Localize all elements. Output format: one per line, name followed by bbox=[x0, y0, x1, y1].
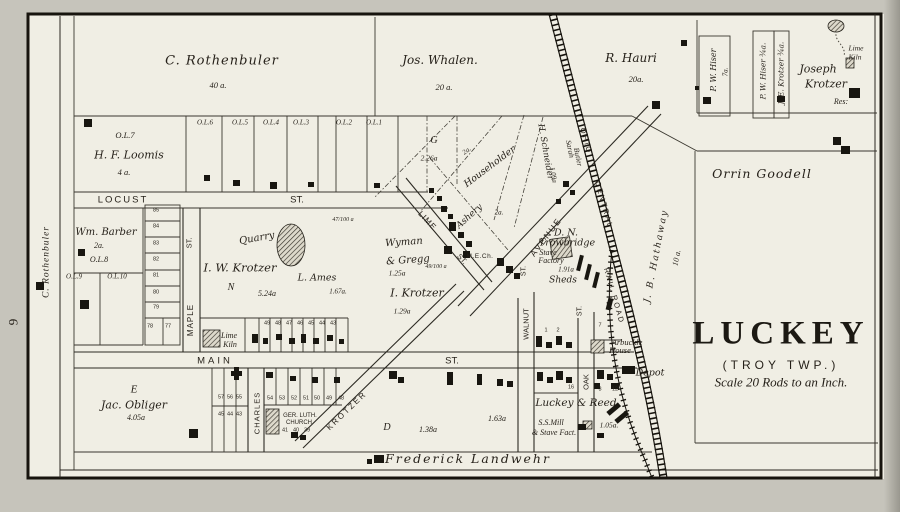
arbuckle-house-label-2: House bbox=[609, 346, 631, 355]
atlas-page: 9 C. Rothenbuler LUCKEY (TROY TWP.) Scal… bbox=[0, 0, 900, 512]
acreage-label: 7a. bbox=[723, 68, 730, 77]
outlot-label: O.L.9 bbox=[66, 274, 82, 281]
lot-number: 45 bbox=[308, 321, 314, 327]
map-scale: Scale 20 Rods to an Inch. bbox=[715, 376, 848, 389]
parcel-letter-n: N bbox=[228, 283, 235, 293]
parcel-letter-e: E bbox=[131, 385, 138, 396]
acreage-label: 1.05a. bbox=[600, 421, 619, 429]
parcel-label-whalen: Jos. Whalen. bbox=[402, 54, 478, 66]
outlot-label: O.L.3 bbox=[293, 120, 309, 127]
acreage-label: 4 a. bbox=[118, 168, 131, 177]
acreage-label: 1.25a bbox=[389, 269, 406, 277]
parcel-label-hiser-34: P. W. Hiser ¾a. bbox=[759, 43, 767, 100]
street-label-oak: OAK bbox=[582, 374, 590, 390]
street-label-locust: LOCUST bbox=[98, 195, 149, 205]
lot-number: 44 bbox=[319, 321, 325, 327]
parcel-label-krotzer-je: J. E. Krotzer ¾a. bbox=[777, 42, 785, 105]
lot-number: 49 bbox=[326, 396, 332, 402]
map-title: LUCKEY bbox=[692, 318, 869, 351]
street-label-main-st: ST. bbox=[445, 356, 459, 366]
acreage-label: 2a. bbox=[495, 210, 504, 217]
lime-kiln-label: Lime bbox=[221, 332, 237, 340]
parcel-label-joseph-krotzer-2: Krotzer bbox=[805, 79, 847, 90]
parcel-label-trowbridge-2: Trowbridge bbox=[539, 238, 595, 248]
lot-number: 1 bbox=[544, 328, 547, 334]
stave-factory-label-2: Factory bbox=[538, 257, 563, 265]
parcel-letter-d: D bbox=[383, 423, 390, 433]
acreage-label: 1.09a bbox=[548, 167, 558, 184]
outlot-label: O.L.6 bbox=[197, 120, 213, 127]
lot-number: 53 bbox=[279, 396, 285, 402]
lot-number: 52 bbox=[291, 396, 297, 402]
parcel-label-hiser-7a: P. W. Hiser bbox=[710, 49, 718, 92]
parcel-label-landwehr: Frederick Landwehr bbox=[385, 453, 551, 466]
fraction-acreage-label: 47/100 a bbox=[332, 217, 353, 223]
acreage-label: 20 a. bbox=[436, 83, 453, 92]
lot-number: 43 bbox=[330, 321, 336, 327]
lot-number: 80 bbox=[153, 290, 159, 296]
acreage-label: 1.91a bbox=[558, 267, 574, 274]
acreage-label: 1.63a bbox=[488, 415, 506, 423]
lot-number: 79 bbox=[153, 305, 159, 311]
parcel-label-loomis: H. F. Loomis bbox=[94, 150, 164, 161]
lot-number: 85 bbox=[153, 208, 159, 214]
mill-label: S.S.Mill bbox=[538, 419, 563, 427]
acreage-label: 1.29a bbox=[394, 307, 411, 315]
mill-label-2: & Stave Fact. bbox=[532, 429, 576, 437]
street-label-maple: MAPLE bbox=[187, 304, 195, 336]
fraction-acreage-label: 49/100 a bbox=[425, 264, 446, 270]
street-label-charles: CHARLES bbox=[253, 392, 261, 434]
sheds-label: Sheds bbox=[549, 277, 577, 286]
lot-number: 57 bbox=[218, 395, 224, 401]
lot-number: 46 bbox=[297, 321, 303, 327]
kiln-trail bbox=[836, 31, 844, 56]
parcel-label-hauri: R. Hauri bbox=[605, 52, 657, 64]
lime-kiln-label-2: Kiln bbox=[223, 341, 237, 349]
parcel-label-ames: L. Ames bbox=[298, 273, 337, 283]
lot-number: 7 bbox=[598, 323, 601, 329]
lot-number: 51 bbox=[303, 396, 309, 402]
street-label-locust-st: ST. bbox=[290, 195, 304, 205]
outlot-label: O.L.10 bbox=[107, 274, 126, 281]
parcel-label-rothenbuler: C. Rothenbuler bbox=[165, 55, 279, 68]
ger-luth-church-building bbox=[266, 409, 279, 434]
page-number: 9 bbox=[7, 319, 20, 326]
parcel-letter-g: G bbox=[430, 136, 437, 146]
ne-kiln-blob bbox=[828, 20, 844, 32]
street-label-oak-st: ST. bbox=[577, 306, 584, 316]
lime-kiln-ne-label-2: Kiln bbox=[849, 53, 862, 61]
outlot-label: O.L.7 bbox=[115, 131, 134, 140]
outlot-label: O.L.5 bbox=[232, 120, 248, 127]
street-label-walnut-st: ST. bbox=[521, 266, 528, 276]
lot-number: 41 bbox=[282, 428, 288, 434]
parcel-label-joseph-krotzer: Joseph bbox=[799, 64, 836, 75]
lot-number: 84 bbox=[153, 224, 159, 230]
acreage-label: 40 a. bbox=[210, 81, 227, 90]
outlot-label: O.L.1 bbox=[366, 120, 382, 127]
parcel-label-krotzer-i: I. Krotzer bbox=[390, 288, 443, 299]
street-label-maple-st: ST. bbox=[185, 238, 193, 249]
page-edge-shadow bbox=[884, 0, 900, 512]
lot-number: 16 bbox=[568, 385, 574, 391]
acreage-label: 1.38a bbox=[419, 426, 437, 434]
me-church-label: M.E.Ch. bbox=[467, 254, 494, 261]
depot-label: Depot bbox=[636, 368, 665, 378]
ger-luth-church-label-2: CHURCH bbox=[286, 420, 312, 426]
dashed-parcel-lines bbox=[374, 115, 543, 250]
lot-number: 56 bbox=[227, 395, 233, 401]
street-label-main: MAIN bbox=[197, 356, 233, 366]
lot-number: 81 bbox=[153, 273, 159, 279]
lot-number: 49 bbox=[264, 321, 270, 327]
arbuckle-house-building bbox=[591, 340, 604, 353]
acreage-label: 4.05a bbox=[127, 414, 145, 422]
lot-number: 83 bbox=[153, 241, 159, 247]
lot-number: 3 bbox=[598, 387, 601, 393]
lot-number: 48 bbox=[338, 396, 344, 402]
ger-luth-church-label: GER. LUTH. bbox=[283, 413, 317, 419]
lot-number: 47 bbox=[286, 321, 292, 327]
parcel-label-krotzer-iw: I. W. Krotzer bbox=[204, 262, 277, 274]
lime-kiln-building bbox=[203, 330, 220, 347]
lot-number: 44 bbox=[227, 412, 233, 418]
acreage-label: 5.24a bbox=[258, 290, 276, 298]
acreage-label: 2a. bbox=[94, 242, 104, 250]
lot-number: 45 bbox=[218, 412, 224, 418]
lot-number: 77 bbox=[165, 324, 171, 330]
lot-number: 78 bbox=[147, 324, 153, 330]
lot-number: 50 bbox=[314, 396, 320, 402]
acreage-label: 2.26a bbox=[421, 154, 438, 162]
outlot-label: O.L.8 bbox=[90, 256, 108, 264]
quarry-blob bbox=[277, 224, 305, 266]
parcel-label-obliger: Jac. Obliger bbox=[101, 400, 167, 411]
lot-number: 40 bbox=[293, 428, 299, 434]
street-label-walnut: WALNUT bbox=[522, 308, 530, 339]
margin-owner-label: C. Rothenbuler bbox=[42, 226, 52, 298]
lime-kiln-ne-label: Lime bbox=[849, 44, 864, 52]
acreage-label: 20a. bbox=[629, 75, 644, 84]
lot-number: 2 bbox=[556, 328, 559, 334]
lot-number: 39 bbox=[304, 428, 310, 434]
parcel-label-goodell: Orrin Goodell bbox=[712, 168, 812, 181]
map-township: (TROY TWP.) bbox=[723, 359, 840, 371]
lot-number: 55 bbox=[236, 395, 242, 401]
lot-number: 82 bbox=[153, 257, 159, 263]
lot-number: 48 bbox=[275, 321, 281, 327]
lot-number: 43 bbox=[236, 412, 242, 418]
lot-number: 54 bbox=[267, 396, 273, 402]
lot-number: 12 bbox=[612, 387, 618, 393]
parcel-label-barber: Wm. Barber bbox=[75, 228, 136, 238]
parcel-label-luckey-reed: Luckey & Reed bbox=[535, 398, 616, 409]
residence-label: Res: bbox=[834, 98, 848, 106]
outlot-label: O.L.4 bbox=[263, 120, 279, 127]
acreage-label: 1.67a. bbox=[329, 289, 347, 296]
outlot-label: O.L.2 bbox=[336, 120, 352, 127]
